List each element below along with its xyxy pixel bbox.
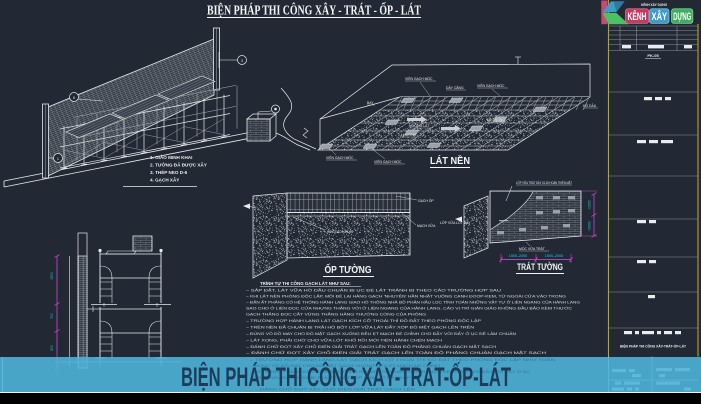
svg-text:TRÌNH TỰ THI CÔNG GẠCH LÁT NHƯ: TRÌNH TỰ THI CÔNG GẠCH LÁT NHƯ SAU: xyxy=(260,281,351,286)
svg-text:<2000: <2000 xyxy=(588,200,592,209)
svg-text:BIỆN PHÁP THI CÔNG XÂY - TRÁT: BIỆN PHÁP THI CÔNG XÂY - TRÁT - ỐP - LÁT xyxy=(207,1,421,19)
svg-text:ĐỂ TRỐNG: ĐỂ TRỐNG xyxy=(487,117,505,122)
svg-text:– ĐẶN ẤT PHẲNG CÓ HỆ THỐNG HÀN: – ĐẶN ẤT PHẲNG CÓ HỆ THỐNG HÀNH LANG GIA… xyxy=(246,300,580,305)
svg-text:1. GIÀO MINH KHAI: 1. GIÀO MINH KHAI xyxy=(150,154,192,160)
svg-text:– TRƯỜNG HỢP HÀNH LANG LÁT GẠC: – TRƯỜNG HỢP HÀNH LANG LÁT GẠCH KÍCH CỠ … xyxy=(246,318,481,323)
svg-text:ỐP TƯỜNG: ỐP TƯỜNG xyxy=(325,262,372,276)
svg-text:– ĐÚNG VỒ ĐỒ MAY CHO ĐỒ MẶT GẠ: – ĐÚNG VỒ ĐỒ MAY CHO ĐỒ MẶT GẠCH XUỐNG Đ… xyxy=(246,331,516,336)
svg-text:– LÁT XONG, PHẢI CHỜ CHO VỮA L: – LÁT XONG, PHẢI CHỜ CHO VỮA LÓT KHÔ RỒI… xyxy=(246,338,442,343)
svg-text:4. GẠCH XÂY: 4. GẠCH XÂY xyxy=(150,177,179,183)
svg-text:LÁT NỀN: LÁT NỀN xyxy=(430,154,470,167)
svg-text:– ĐÁNH CHỮ ĐỢT XÂY CHỖ ĐIỂN GI: – ĐÁNH CHỮ ĐỢT XÂY CHỖ ĐIỂN GIẢI TRÁT GẠ… xyxy=(246,344,496,349)
svg-text:2. TƯỜNG ĐÃ ĐƯỢC XÂY: 2. TƯỜNG ĐÃ ĐƯỢC XÂY xyxy=(150,161,207,168)
svg-text:HỒ DẦU: HỒ DẦU xyxy=(583,103,597,108)
svg-text:HƯỚNG LÁT: HƯỚNG LÁT xyxy=(409,123,430,128)
svg-text:700: 700 xyxy=(50,313,54,319)
svg-text:KÊNH: KÊNH xyxy=(628,10,647,23)
svg-text:TRÁT TƯỜNG: TRÁT TƯỜNG xyxy=(517,261,563,273)
svg-text:XÂY: XÂY xyxy=(652,10,668,23)
svg-text:– TRỀN NỀN ĐÃ CHUẨN BỊ TRẢI HỒ: – TRỀN NỀN ĐÃ CHUẨN BỊ TRẢI HỒ BỘT LỚP V… xyxy=(246,325,474,330)
svg-text:1500–2000: 1500–2000 xyxy=(545,254,563,258)
svg-text:<2000: <2000 xyxy=(588,221,592,230)
svg-text:LỚP VỮA TRÁT DÀY 15-20 HOÀN TH: LỚP VỮA TRÁT DÀY 15-20 HOÀN THIỆN MẶT xyxy=(516,180,572,185)
svg-text:VIÊN GẠCH MỐC: VIÊN GẠCH MỐC xyxy=(405,76,433,81)
svg-text:HƯỚNG: HƯỚNG xyxy=(403,132,417,137)
svg-text:– SẮP ĐẶT, LÁT VỮA HỒ DẦU CHUẨ: – SẮP ĐẶT, LÁT VỮA HỒ DẦU CHUẨN BỊ ỤC ĐỂ… xyxy=(246,288,501,293)
svg-text:VIÊN GẠCH MỐC: VIÊN GẠCH MỐC xyxy=(326,155,354,160)
svg-text:DỰNG: DỰNG xyxy=(673,11,691,23)
svg-text:3: 3 xyxy=(241,59,243,63)
svg-text:6: 6 xyxy=(73,96,75,100)
svg-text:– KHI LÁT NỀN PHÒNG ĐỘC LẬP, M: – KHI LÁT NỀN PHÒNG ĐỘC LẬP, MỖI ĐỀ LẠI … xyxy=(246,294,566,299)
svg-text:VIÊN GẠCH MỐC: VIÊN GẠCH MỐC xyxy=(374,159,402,164)
svg-text:GẠCH THẲNG ĐỌC CẮT VỪNG THẲNG: GẠCH THẲNG ĐỌC CẮT VỪNG THẲNG HÀNG THƯỜN… xyxy=(246,312,426,317)
svg-text:VIÊN GẠCH MỐC: VIÊN GẠCH MỐC xyxy=(477,83,505,88)
svg-text:BAY: BAY xyxy=(367,101,374,105)
svg-text:– ĐÁNH CHỮ ĐỢT XÂY CHỖ ĐIỂN GI: – ĐÁNH CHỮ ĐỢT XÂY CHỖ ĐIỂN GIẢI TRÁT GẠ… xyxy=(246,350,546,355)
svg-text:MẠCH VỮA: MẠCH VỮA xyxy=(417,223,436,228)
svg-text:PK-05: PK-05 xyxy=(647,53,659,58)
svg-text:BIỆN PHÁP THI CÔNG XÂY-TRÁT-ỐP: BIỆN PHÁP THI CÔNG XÂY-TRÁT-ỐP-LÁT xyxy=(620,344,686,349)
svg-text:HÀNG GẠCH CHUẨN: HÀNG GẠCH CHUẨN xyxy=(327,229,353,234)
svg-text:SAO CHO Ở LIỀN ĐỌC CỬA NHƯNG T: SAO CHO Ở LIỀN ĐỌC CỬA NHƯNG THẲNG VỚI Ở… xyxy=(246,306,572,311)
svg-text:GẠCH ỐP: GẠCH ỐP xyxy=(418,198,434,203)
svg-text:BIỆN PHÁP THI CÔNG XÂY-TRÁT-ỐP: BIỆN PHÁP THI CÔNG XÂY-TRÁT-ỐP-LÁT xyxy=(181,362,511,392)
svg-text:1: 1 xyxy=(57,157,59,161)
svg-text:1500–2000: 1500–2000 xyxy=(509,254,527,258)
svg-text:3. THÉP NEO D-6: 3. THÉP NEO D-6 xyxy=(150,168,188,175)
svg-text:DÂY CĂNG: DÂY CĂNG xyxy=(446,86,464,90)
svg-text:1500: 1500 xyxy=(50,272,54,280)
svg-text:KÊNH XÂY DỰNG: KÊNH XÂY DỰNG xyxy=(641,2,667,7)
svg-text:500: 500 xyxy=(50,345,54,351)
svg-text:MỐC VỮA TRÁT: MỐC VỮA TRÁT xyxy=(519,246,545,251)
